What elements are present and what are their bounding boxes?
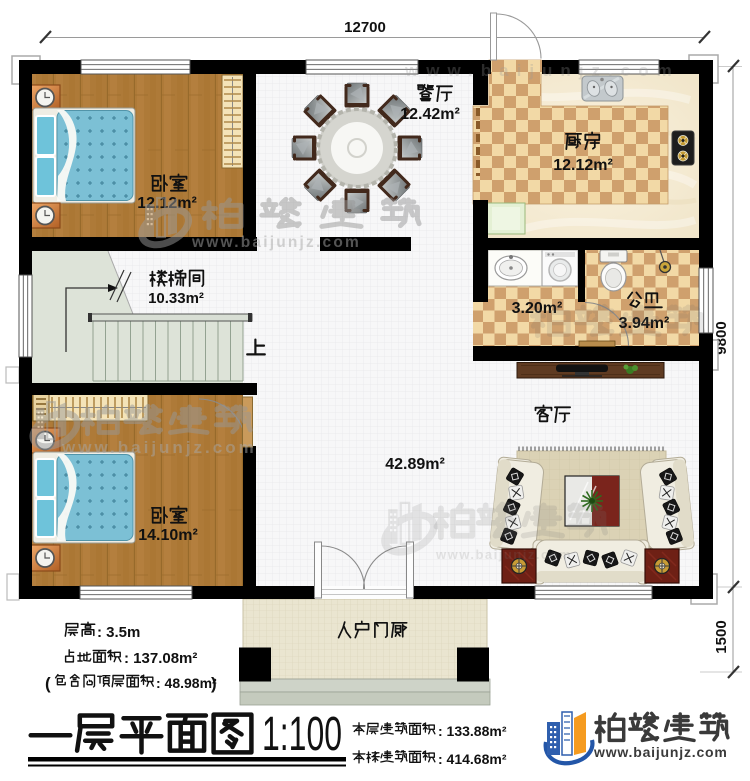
- svg-text:: 48.98m²: : 48.98m²: [156, 675, 217, 691]
- svg-text:12.12m²: 12.12m²: [553, 157, 613, 174]
- svg-text:12.42m²: 12.42m²: [400, 106, 460, 123]
- svg-text:www.baijunjz.com: www.baijunjz.com: [435, 547, 572, 562]
- svg-text:(: (: [45, 674, 51, 693]
- svg-text:12700: 12700: [344, 19, 386, 36]
- svg-text:: 137.08m²: : 137.08m²: [124, 650, 197, 667]
- svg-text:1:100: 1:100: [262, 708, 342, 761]
- svg-text:: 414.68m²: : 414.68m²: [438, 751, 507, 767]
- svg-text:10.33m²: 10.33m²: [148, 290, 204, 307]
- svg-text:14.10m²: 14.10m²: [138, 527, 198, 544]
- svg-text:www.baijunjz.com: www.baijunjz.com: [404, 61, 680, 80]
- svg-text:): ): [211, 674, 217, 693]
- svg-text:1500: 1500: [713, 620, 730, 653]
- svg-text:www.baijunjz.com: www.baijunjz.com: [593, 744, 728, 760]
- svg-text:42.89m²: 42.89m²: [385, 456, 445, 473]
- svg-text:www.baijunjz.com: www.baijunjz.com: [61, 438, 257, 457]
- svg-text:: 133.88m²: : 133.88m²: [438, 723, 507, 739]
- svg-text:www.baijunjz.com: www.baijunjz.com: [191, 234, 361, 251]
- svg-text:: 3.5m: : 3.5m: [97, 624, 140, 641]
